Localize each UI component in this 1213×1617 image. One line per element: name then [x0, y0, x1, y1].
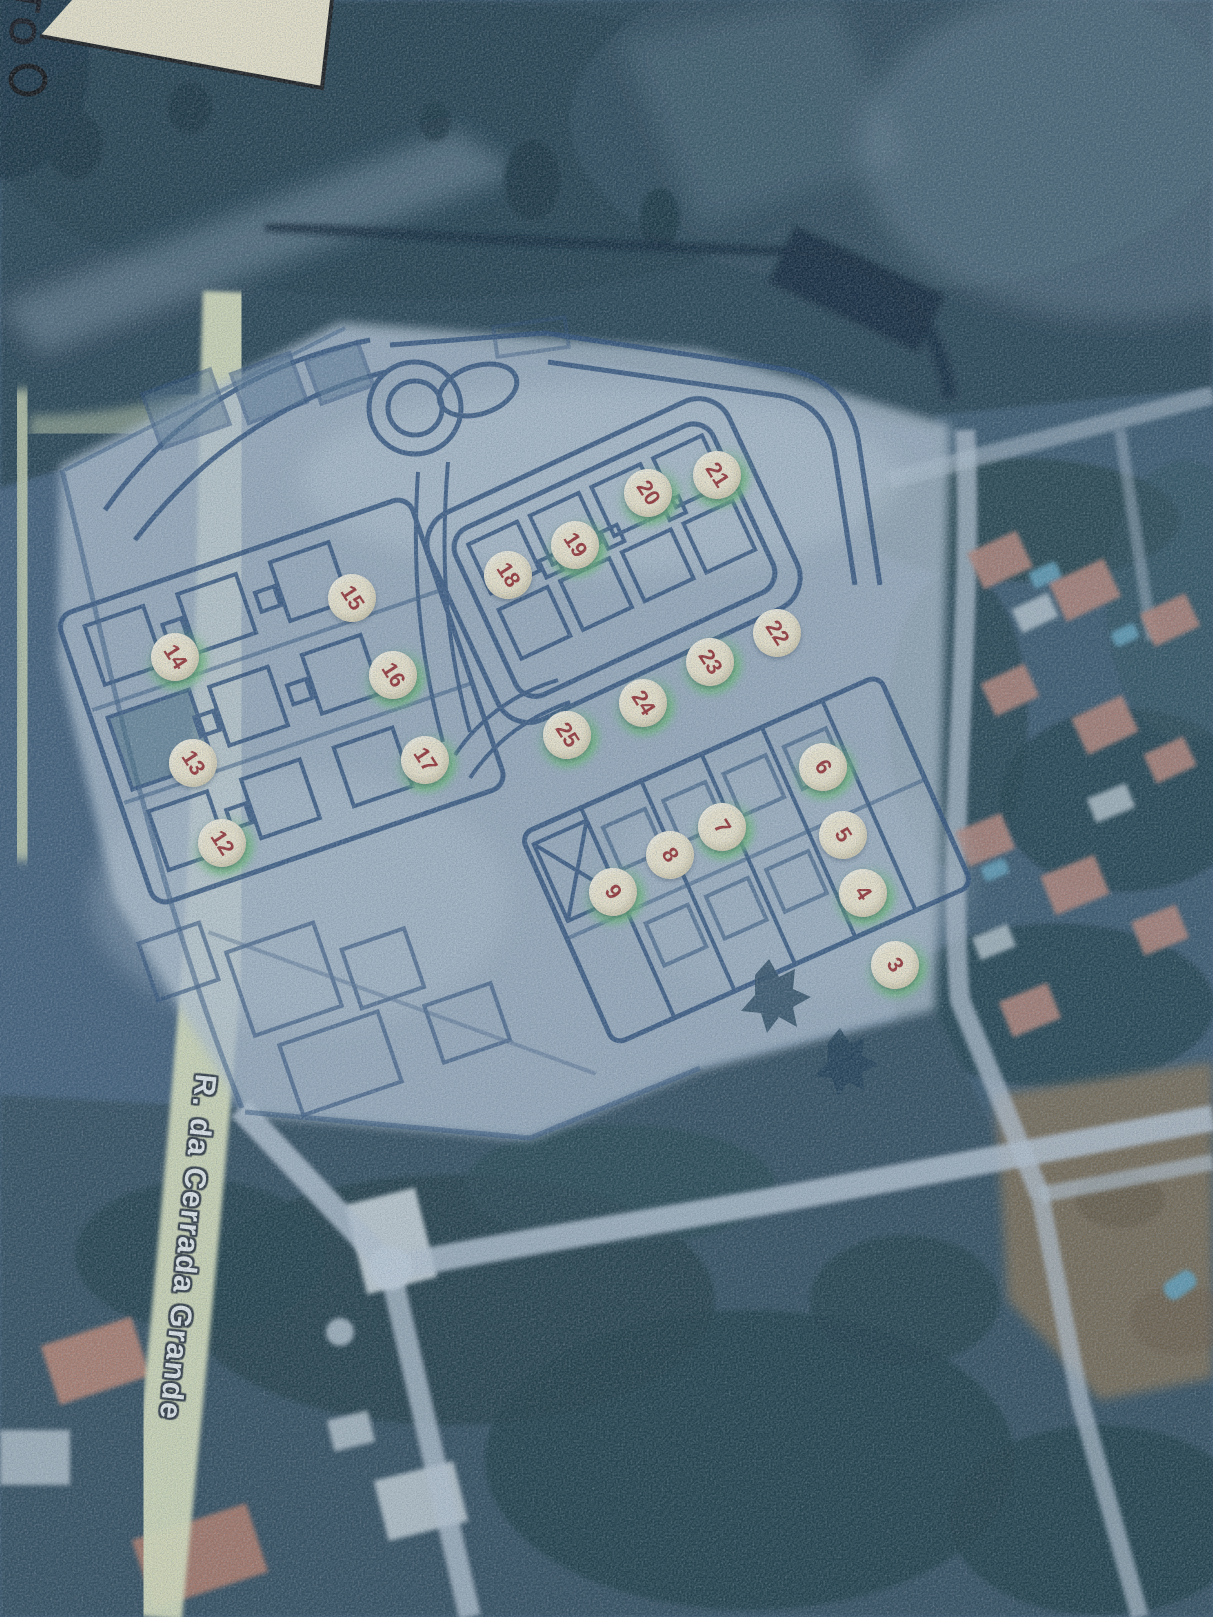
- lot-marker-22: 22: [753, 609, 801, 657]
- lot-marker-24: 24: [619, 679, 667, 727]
- lot-marker-number: 12: [206, 827, 238, 860]
- lot-marker-number: 15: [336, 582, 368, 615]
- lot-marker-number: 20: [632, 477, 664, 510]
- lot-marker-number: 3: [882, 954, 907, 976]
- lot-marker-number: 17: [409, 744, 441, 777]
- lot-marker-number: 8: [657, 844, 682, 866]
- lot-marker-19: 19: [551, 521, 599, 569]
- lot-marker-12: 12: [198, 819, 246, 867]
- lot-marker-number: 7: [709, 816, 734, 838]
- lot-marker-number: 24: [627, 687, 659, 720]
- lot-marker-5: 5: [819, 811, 867, 859]
- lot-marker-6: 6: [799, 743, 847, 791]
- lot-marker-13: 13: [169, 739, 217, 787]
- lot-marker-number: 14: [159, 641, 191, 674]
- lot-marker-number: 21: [701, 459, 733, 492]
- lot-marker-17: 17: [401, 736, 449, 784]
- lot-marker-18: 18: [484, 551, 532, 599]
- lot-marker-21: 21: [693, 451, 741, 499]
- lot-marker-14: 14: [151, 633, 199, 681]
- lot-marker-9: 9: [589, 868, 637, 916]
- lot-marker-number: 13: [177, 747, 209, 780]
- lot-marker-3: 3: [871, 941, 919, 989]
- lot-marker-15: 15: [328, 574, 376, 622]
- lot-marker-8: 8: [646, 831, 694, 879]
- lot-marker-number: 19: [559, 529, 591, 562]
- lot-marker-number: 4: [850, 882, 875, 904]
- lot-marker-23: 23: [686, 638, 734, 686]
- lot-marker-number: 5: [830, 824, 855, 846]
- lot-marker-number: 6: [810, 756, 835, 778]
- lot-marker-number: 22: [761, 617, 793, 650]
- lot-marker-number: 25: [551, 719, 583, 752]
- lot-marker-number: 23: [694, 646, 726, 679]
- lot-marker-number: 18: [492, 559, 524, 592]
- lot-marker-16: 16: [369, 651, 417, 699]
- lot-marker-number: 9: [600, 881, 625, 903]
- lot-marker-20: 20: [624, 469, 672, 517]
- lot-marker-4: 4: [839, 869, 887, 917]
- lot-marker-number: 16: [377, 659, 409, 692]
- lot-marker-7: 7: [698, 803, 746, 851]
- lot-marker-25: 25: [543, 711, 591, 759]
- photographed-map: 34567891213141516171819202122232425 R. d…: [0, 0, 1213, 1617]
